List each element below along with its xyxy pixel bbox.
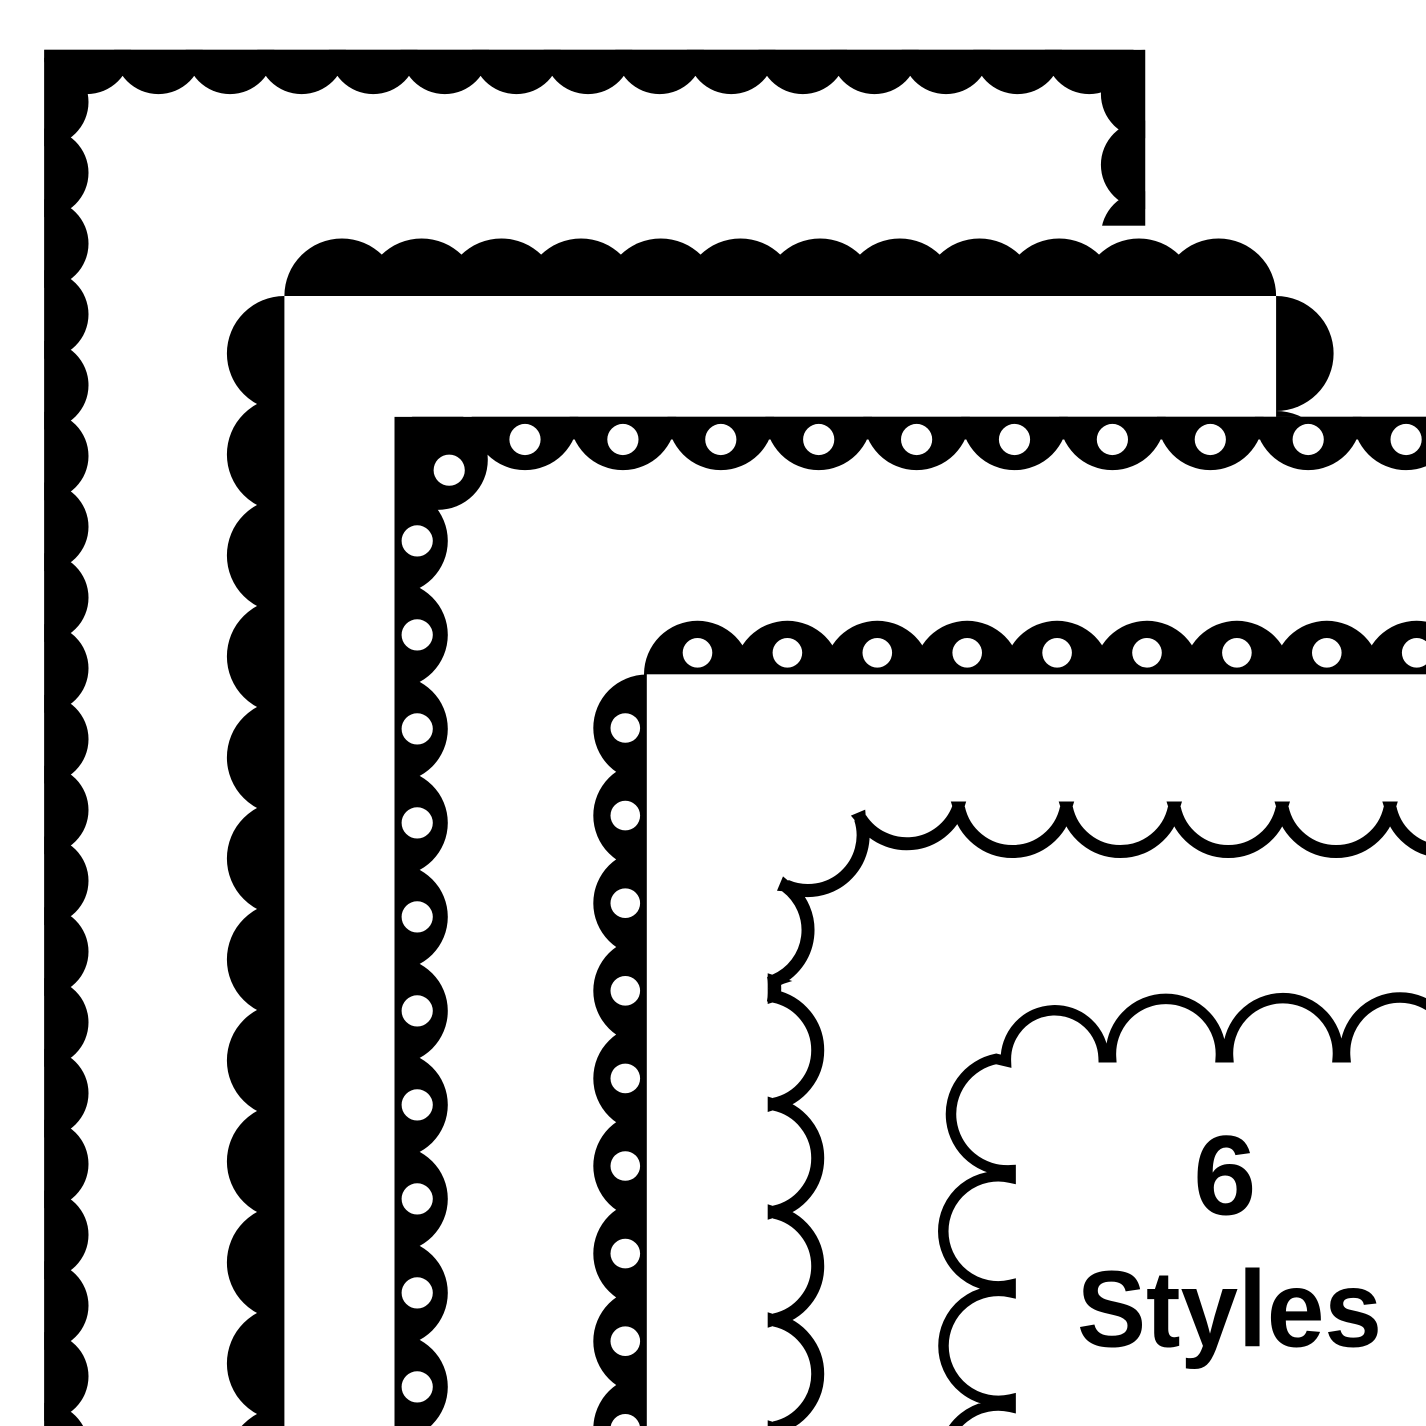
- svg-text:Styles: Styles: [1077, 1248, 1382, 1369]
- svg-text:6: 6: [1193, 1113, 1256, 1239]
